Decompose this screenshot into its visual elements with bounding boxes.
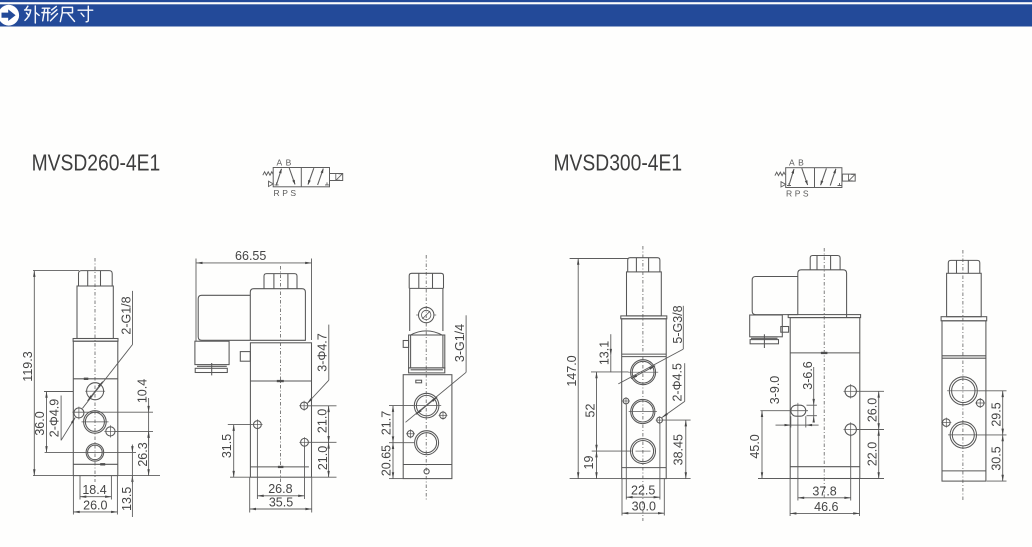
svg-text:R: R	[786, 188, 792, 198]
svg-text:3-9.0: 3-9.0	[768, 376, 782, 405]
svg-text:30.0: 30.0	[632, 500, 656, 514]
svg-text:3-G1/4: 3-G1/4	[453, 324, 467, 362]
svg-text:B: B	[798, 158, 804, 168]
svg-text:3-6.6: 3-6.6	[801, 361, 815, 390]
svg-text:26.0: 26.0	[865, 398, 879, 422]
svg-text:22.5: 22.5	[631, 484, 655, 498]
svg-text:2-G1/8: 2-G1/8	[120, 296, 134, 334]
svg-text:S: S	[290, 188, 296, 198]
svg-text:20.65: 20.65	[379, 445, 393, 476]
svg-text:A: A	[277, 157, 283, 167]
svg-text:119.3: 119.3	[21, 351, 35, 381]
svg-text:MVSD300-4E1: MVSD300-4E1	[554, 150, 683, 176]
svg-text:37.8: 37.8	[812, 484, 836, 498]
svg-text:36.0: 36.0	[33, 411, 47, 435]
svg-text:22.0: 22.0	[865, 442, 879, 466]
svg-text:13.1: 13.1	[598, 341, 612, 365]
svg-text:21.7: 21.7	[379, 411, 393, 435]
svg-text:35.5: 35.5	[269, 496, 293, 510]
svg-text:30.5: 30.5	[989, 446, 1003, 470]
svg-text:26.8: 26.8	[268, 482, 292, 496]
svg-text:52: 52	[583, 404, 597, 418]
svg-text:19: 19	[582, 456, 596, 470]
svg-text:45.0: 45.0	[748, 434, 762, 458]
svg-text:38.45: 38.45	[672, 434, 686, 465]
svg-text:46.6: 46.6	[814, 500, 838, 514]
svg-text:2-Φ4.9: 2-Φ4.9	[48, 399, 62, 438]
svg-text:21.0: 21.0	[316, 409, 330, 433]
svg-text:MVSD260-4E1: MVSD260-4E1	[32, 150, 161, 176]
svg-text:13.5: 13.5	[120, 487, 134, 511]
svg-text:26.3: 26.3	[136, 442, 150, 466]
svg-text:21.0: 21.0	[316, 446, 330, 470]
svg-text:66.55: 66.55	[235, 249, 266, 263]
svg-text:S: S	[803, 188, 809, 198]
svg-text:2-Φ4.5: 2-Φ4.5	[671, 363, 685, 402]
svg-text:R: R	[274, 188, 280, 198]
svg-text:31.5: 31.5	[220, 434, 234, 458]
svg-text:3-Φ4.7: 3-Φ4.7	[316, 333, 330, 372]
svg-text:P: P	[795, 188, 801, 198]
svg-text:18.4: 18.4	[82, 483, 106, 497]
svg-text:10.4: 10.4	[136, 379, 150, 403]
svg-text:A: A	[789, 158, 795, 168]
svg-text:26.0: 26.0	[83, 499, 107, 513]
svg-text:B: B	[286, 157, 292, 167]
svg-text:147.0: 147.0	[565, 355, 579, 386]
svg-text:5-G3/8: 5-G3/8	[671, 305, 685, 343]
svg-text:P: P	[282, 188, 288, 198]
svg-text:29.5: 29.5	[989, 402, 1003, 426]
